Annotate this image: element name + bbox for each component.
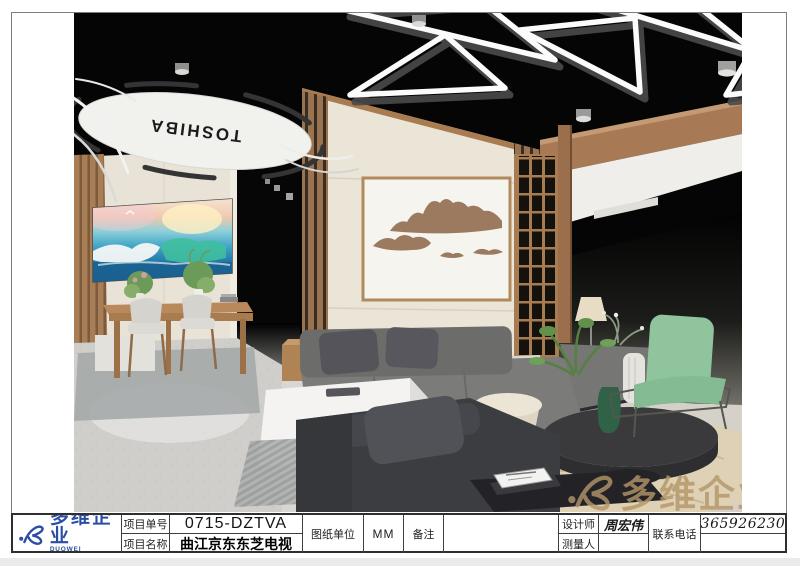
company-logo-icon xyxy=(18,519,47,549)
sofa-pillow xyxy=(318,329,379,376)
surveyor-value xyxy=(598,534,648,553)
surveyor-label: 测量人 xyxy=(558,534,598,553)
project-no-value: 0715-DZTVA xyxy=(169,515,302,534)
page-bottom-strip xyxy=(0,558,800,566)
designer-label: 设计师 xyxy=(558,515,598,534)
wood-post xyxy=(558,125,572,343)
render-scene: TOSHIBA xyxy=(74,13,742,512)
phone-label: 联系电话 xyxy=(648,515,700,553)
remark-label: 备注 xyxy=(403,515,443,553)
project-no-label: 项目单号 xyxy=(121,515,169,534)
sofa-pillow xyxy=(385,327,439,370)
mountain-art-panel xyxy=(363,178,510,300)
interior-render: TOSHIBA xyxy=(74,13,742,512)
title-block: 多维企业 DUOWEI ENTERPRISE 项目单号 0715-DZTVA 项… xyxy=(11,513,787,553)
company-name: 多维企业 xyxy=(50,515,121,546)
drawing-sheet: TOSHIBA xyxy=(0,0,800,566)
company-logo: 多维企业 DUOWEI ENTERPRISE xyxy=(13,515,121,553)
company-name-en: DUOWEI ENTERPRISE xyxy=(50,547,121,553)
designer-value: 周宏伟 xyxy=(598,515,648,534)
remark-value xyxy=(443,515,558,553)
project-name-value: 曲江京东东芝电视 xyxy=(169,534,302,553)
project-name-label: 项目名称 xyxy=(121,534,169,553)
phone-empty-cell xyxy=(700,534,785,553)
unit-label: 图纸单位 xyxy=(302,515,363,553)
phone-value: 13659262305 xyxy=(700,515,785,534)
unit-value: MM xyxy=(363,515,403,553)
